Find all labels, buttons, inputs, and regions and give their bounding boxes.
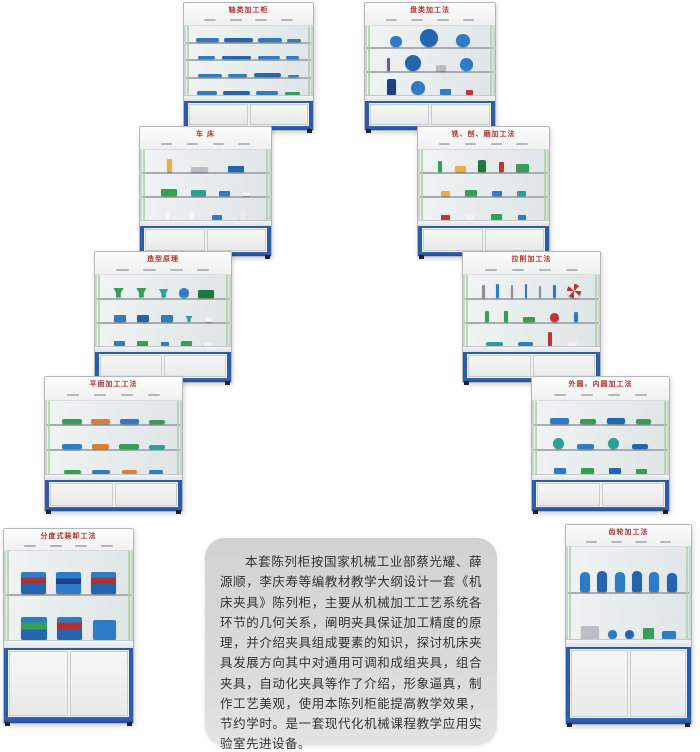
product-photo-collage: 本套陈列柜按国家机械工业部蔡光耀、薛源顺，李庆寿等编教材教学大纲设计一套《机床夹… xyxy=(0,0,700,752)
model-item xyxy=(21,617,46,640)
model-item xyxy=(492,191,501,197)
glass-shelf xyxy=(97,300,229,324)
model-item xyxy=(485,311,489,322)
cupboard-base xyxy=(532,482,669,507)
model-item xyxy=(456,34,470,48)
model-item xyxy=(219,191,230,197)
model-item xyxy=(516,164,529,172)
cabinet-foot xyxy=(265,255,270,259)
cabinet-title: 拉削加工法 xyxy=(512,256,552,263)
model-item xyxy=(405,55,421,71)
cabinet-sill xyxy=(365,95,495,103)
glass-shelf xyxy=(465,324,598,346)
model-item xyxy=(92,470,110,474)
model-item xyxy=(609,468,621,474)
glass-shelf xyxy=(367,26,493,50)
cabinet-molding-principle: 造型原理 xyxy=(94,251,232,383)
model-item xyxy=(539,286,541,298)
model-item xyxy=(504,311,508,322)
model-item xyxy=(577,444,594,449)
model-item xyxy=(287,39,301,42)
cabinet-sill xyxy=(532,474,669,482)
model-item xyxy=(161,189,177,196)
cupboard-base xyxy=(4,650,133,717)
cupboard-door xyxy=(485,229,545,251)
glass-shelf xyxy=(142,198,269,220)
model-item xyxy=(114,315,126,322)
model-item xyxy=(119,444,139,449)
glass-shelf xyxy=(534,451,667,474)
model-item xyxy=(149,470,164,474)
cabinet-title: 造型原理 xyxy=(147,256,179,263)
model-item xyxy=(548,332,552,346)
description-panel: 本套陈列柜按国家机械工业部蔡光耀、薛源顺，李庆寿等编教材教学大纲设计一套《机床夹… xyxy=(205,538,497,745)
cabinet-foot xyxy=(46,510,51,514)
cabinet-header: 轴类加工柜 xyxy=(184,3,313,26)
model-item xyxy=(625,630,634,639)
glass-shelf xyxy=(47,401,180,426)
glass-shelf xyxy=(420,198,547,220)
model-item xyxy=(184,316,194,322)
model-item xyxy=(122,470,138,474)
model-item xyxy=(228,166,244,173)
cupboard-door xyxy=(115,483,178,506)
cupboard-door xyxy=(468,355,531,377)
glass-display-area xyxy=(418,150,549,220)
model-item xyxy=(212,215,223,220)
model-item xyxy=(550,418,568,424)
model-item xyxy=(608,630,617,639)
model-item xyxy=(224,38,253,42)
cabinet-sill xyxy=(566,639,691,650)
glass-shelf xyxy=(465,300,598,324)
model-item xyxy=(511,285,513,297)
glass-display-area xyxy=(184,26,313,95)
model-item xyxy=(636,419,651,424)
model-item xyxy=(198,74,222,77)
model-item xyxy=(288,75,300,78)
model-item xyxy=(486,342,503,346)
model-item xyxy=(137,341,148,346)
glass-shelf xyxy=(420,150,547,174)
cupboard-door xyxy=(189,104,248,126)
model-item xyxy=(597,571,607,592)
base-rail xyxy=(4,717,133,723)
model-item xyxy=(223,91,249,95)
model-item xyxy=(441,191,450,197)
item-label-row xyxy=(147,143,265,145)
model-item xyxy=(285,92,300,95)
model-item xyxy=(662,631,675,639)
cabinet-header: 齿轮加工法 xyxy=(566,525,691,547)
model-item xyxy=(632,571,642,592)
model-item xyxy=(460,58,473,71)
cabinet-title: 齿轮加工法 xyxy=(609,529,649,536)
model-item xyxy=(93,620,116,640)
cupboard-door xyxy=(602,483,665,506)
model-item xyxy=(135,288,148,298)
model-item xyxy=(197,91,217,95)
model-item xyxy=(258,38,282,41)
cupboard-base xyxy=(566,649,691,718)
model-item xyxy=(607,418,625,424)
glass-display-area xyxy=(95,275,231,346)
cabinet-foot xyxy=(127,722,132,726)
glass-shelf xyxy=(186,79,311,95)
cabinet-header: 造型原理 xyxy=(95,252,231,275)
model-item xyxy=(179,288,189,298)
model-item xyxy=(465,190,477,197)
cabinet-title: 车 床 xyxy=(196,131,215,138)
model-item xyxy=(525,284,527,297)
model-item xyxy=(466,90,473,95)
cupboard-door xyxy=(145,229,205,251)
glass-shelf xyxy=(534,401,667,426)
model-item xyxy=(64,470,81,474)
glass-shelf xyxy=(142,174,269,198)
glass-shelf xyxy=(534,426,667,451)
model-item xyxy=(636,469,647,474)
model-item xyxy=(523,317,535,322)
model-item xyxy=(62,419,82,424)
glass-shelf xyxy=(568,594,689,639)
model-item xyxy=(567,284,580,297)
model-item xyxy=(254,73,282,77)
model-item xyxy=(580,572,590,592)
model-item xyxy=(161,315,173,322)
cabinet-sill xyxy=(463,346,600,354)
glass-shelf xyxy=(367,49,493,73)
cabinet-plane-machining: 平面加工工法 xyxy=(44,376,183,512)
model-item xyxy=(491,214,503,220)
model-item xyxy=(667,573,677,592)
glass-display-area xyxy=(463,275,600,346)
glass-shelf xyxy=(186,61,311,79)
glass-display-area xyxy=(532,401,669,474)
cabinet-gear-machining: 齿轮加工法 xyxy=(565,524,692,725)
model-item xyxy=(436,65,445,71)
model-item xyxy=(496,284,498,297)
model-item xyxy=(466,215,475,220)
cupboard-door xyxy=(630,650,687,717)
item-label-row xyxy=(539,394,662,396)
cupboard-door xyxy=(533,355,596,377)
item-label-row xyxy=(190,19,306,21)
glass-shelf xyxy=(420,174,547,198)
cupboard-base xyxy=(418,228,549,252)
cabinet-foot xyxy=(464,381,469,385)
cabinet-foot xyxy=(225,381,230,385)
cabinet-cylindrical-bore: 外圆、内圆加工法 xyxy=(531,376,670,512)
model-item xyxy=(632,444,648,449)
model-item xyxy=(553,438,564,449)
model-item xyxy=(518,215,526,220)
model-item xyxy=(517,191,526,196)
glass-display-area xyxy=(365,26,495,95)
model-item xyxy=(56,572,81,594)
model-item xyxy=(580,419,596,424)
model-item xyxy=(567,342,577,346)
cabinet-header: 车 床 xyxy=(140,127,271,150)
cupboard-door xyxy=(9,651,68,716)
cupboard-door xyxy=(250,104,309,126)
model-item xyxy=(114,341,125,346)
model-item xyxy=(112,288,125,298)
model-item xyxy=(441,215,450,221)
model-item xyxy=(198,56,215,59)
item-label-row xyxy=(52,394,175,396)
cupboard-base xyxy=(140,228,271,252)
item-label-row xyxy=(372,19,489,21)
model-item xyxy=(387,58,390,71)
cabinet-header: 分度式装卸工法 xyxy=(4,529,133,551)
cabinet-header: 拉削加工法 xyxy=(463,252,600,275)
model-item xyxy=(198,290,214,298)
model-item xyxy=(57,617,82,640)
model-item xyxy=(21,572,46,595)
glass-display-area xyxy=(45,401,182,474)
model-item xyxy=(167,159,172,172)
model-item xyxy=(550,313,559,322)
cupboard-door xyxy=(164,355,226,377)
model-item xyxy=(164,211,171,221)
model-item xyxy=(161,342,170,346)
cupboard-base xyxy=(184,103,313,127)
model-item xyxy=(243,192,250,196)
glass-shelf xyxy=(568,547,689,594)
cabinet-disc-machining: 盘类加工法 xyxy=(364,2,496,131)
model-item xyxy=(518,342,533,346)
description-text: 本套陈列柜按国家机械工业部蔡光耀、薛源顺，李庆寿等编教材教学大纲设计一套《机床夹… xyxy=(220,552,482,752)
model-item xyxy=(258,56,280,59)
model-item xyxy=(120,419,140,424)
model-item xyxy=(181,341,192,346)
cabinet-foot xyxy=(567,723,572,727)
model-item xyxy=(205,318,212,322)
cupboard-door xyxy=(207,229,267,251)
model-item xyxy=(188,211,195,221)
cabinet-broaching: 拉削加工法 xyxy=(462,251,601,383)
cupboard-door xyxy=(370,104,429,126)
cabinet-title: 轴类加工柜 xyxy=(229,7,269,14)
cabinet-title: 外圆、内圆加工法 xyxy=(569,381,633,388)
model-item xyxy=(411,81,425,95)
cabinet-header: 外圆、内圆加工法 xyxy=(532,377,669,401)
cupboard-base xyxy=(463,354,600,378)
cabinet-sill xyxy=(95,346,231,354)
cabinet-title: 盘类加工法 xyxy=(410,7,450,14)
model-item xyxy=(478,160,486,172)
cabinet-header: 铣、刨、磨加工法 xyxy=(418,127,549,150)
cabinet-foot xyxy=(419,255,424,259)
cabinet-foot xyxy=(663,510,668,514)
cupboard-door xyxy=(423,229,483,251)
base-rail xyxy=(566,718,691,724)
glass-display-area xyxy=(4,551,133,640)
model-item xyxy=(615,572,625,592)
glass-shelf xyxy=(142,150,269,174)
cabinet-title: 平面加工工法 xyxy=(90,381,138,388)
model-item xyxy=(438,161,443,172)
model-item xyxy=(191,190,206,197)
glass-display-area xyxy=(566,547,691,639)
glass-shelf xyxy=(367,73,493,95)
model-item xyxy=(149,420,165,424)
cabinet-foot xyxy=(307,129,312,133)
item-label-row xyxy=(425,143,543,145)
model-item xyxy=(390,36,402,48)
cabinet-foot xyxy=(366,129,371,133)
model-item xyxy=(239,212,247,220)
cabinet-sill xyxy=(184,95,313,103)
cupboard-door xyxy=(537,483,600,506)
glass-shelf xyxy=(186,26,311,44)
cupboard-base xyxy=(95,354,231,378)
model-item xyxy=(608,438,619,449)
model-item xyxy=(256,91,278,95)
cabinet-shaft-machining: 轴类加工柜 xyxy=(183,2,314,131)
item-label-row xyxy=(10,545,126,547)
model-item xyxy=(554,468,566,474)
glass-shelf xyxy=(6,551,131,597)
cabinet-sill xyxy=(140,220,271,228)
glass-shelf xyxy=(97,275,229,299)
model-item xyxy=(222,56,251,60)
cabinet-sill xyxy=(418,220,549,228)
model-item xyxy=(62,444,82,449)
model-item xyxy=(286,56,299,59)
glass-shelf xyxy=(465,275,598,299)
model-item xyxy=(91,419,109,424)
model-item xyxy=(204,343,211,347)
model-item xyxy=(137,315,149,322)
cabinet-foot xyxy=(5,722,10,726)
cupboard-door xyxy=(431,104,490,126)
model-item xyxy=(92,444,109,449)
model-item xyxy=(455,166,466,173)
model-item xyxy=(643,628,654,639)
model-item xyxy=(420,29,439,48)
glass-shelf xyxy=(97,324,229,346)
cabinet-header: 盘类加工法 xyxy=(365,3,495,26)
cabinet-header: 平面加工工法 xyxy=(45,377,182,401)
glass-display-area xyxy=(140,150,271,220)
cabinet-foot xyxy=(176,510,181,514)
cupboard-base xyxy=(45,482,182,507)
cabinet-title: 分度式装卸工法 xyxy=(41,533,97,540)
cabinet-lathe: 车 床 xyxy=(139,126,272,257)
model-item xyxy=(499,162,504,173)
model-item xyxy=(191,167,207,172)
glass-shelf xyxy=(47,451,180,474)
cabinet-title: 铣、刨、磨加工法 xyxy=(452,131,516,138)
model-item xyxy=(149,445,165,449)
cupboard-base xyxy=(365,103,495,127)
item-label-row xyxy=(572,541,685,543)
model-item xyxy=(553,285,555,298)
base-rail xyxy=(532,507,669,511)
cabinet-mill-plane-grind: 铣、刨、磨加工法 xyxy=(417,126,550,257)
glass-shelf xyxy=(47,426,180,451)
cupboard-door xyxy=(50,483,113,506)
cupboard-door xyxy=(571,650,628,717)
model-item xyxy=(581,626,599,639)
base-rail xyxy=(45,507,182,511)
item-label-row xyxy=(470,269,593,271)
cupboard-door xyxy=(100,355,162,377)
item-label-row xyxy=(102,269,224,271)
model-item xyxy=(91,572,116,595)
model-item xyxy=(196,38,219,41)
model-item xyxy=(158,289,170,297)
glass-shelf xyxy=(6,596,131,640)
cabinet-sill xyxy=(4,640,133,650)
cabinet-foot xyxy=(533,510,538,514)
cabinet-foot xyxy=(685,723,690,727)
cabinet-sill xyxy=(45,474,182,482)
cabinet-indexing-fixtures: 分度式装卸工法 xyxy=(3,528,134,724)
model-item xyxy=(228,74,246,77)
model-item xyxy=(649,572,659,592)
cupboard-door xyxy=(70,651,129,716)
model-item xyxy=(482,285,484,298)
glass-shelf xyxy=(186,44,311,62)
model-item xyxy=(581,468,593,474)
model-item xyxy=(574,312,578,322)
model-item xyxy=(440,89,450,95)
model-item xyxy=(387,79,396,95)
